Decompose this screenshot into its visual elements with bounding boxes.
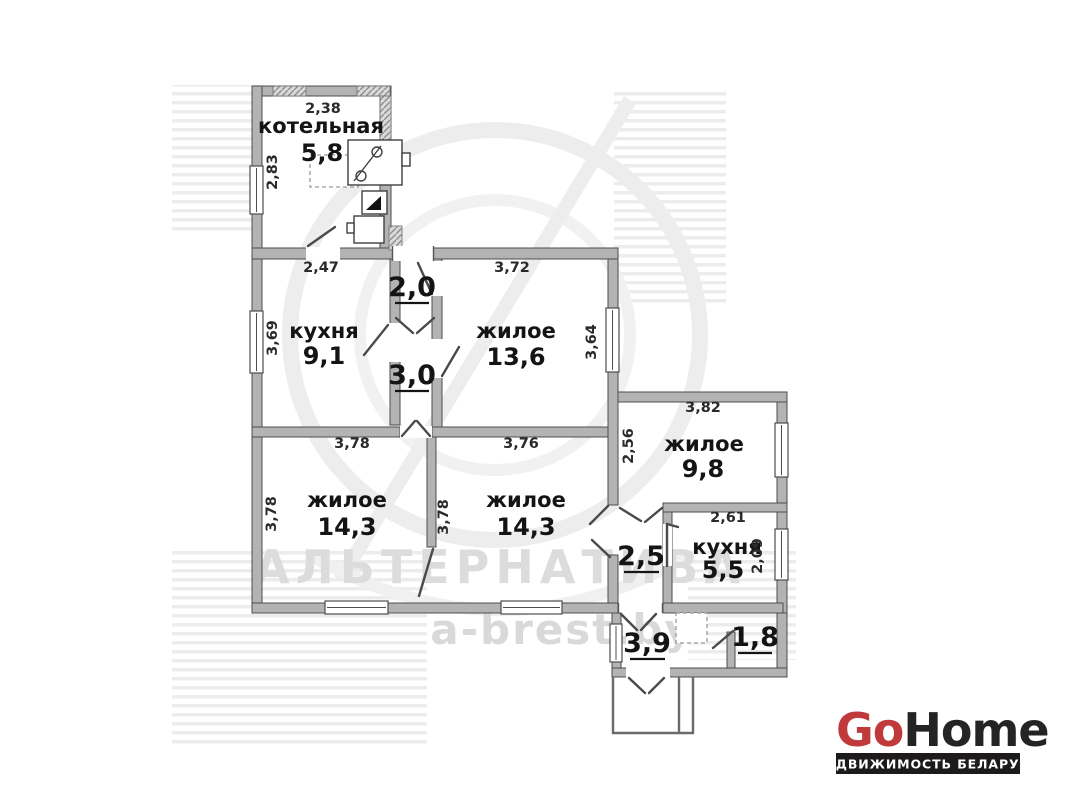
logo-tagline: НЕДВИЖИМОСТЬ БЕЛАРУСИ [815, 757, 1041, 772]
dimension-label: 2,61 [710, 510, 746, 526]
room-area-kitchen2: 5,5 [702, 556, 745, 584]
room-area-boiler: 5,8 [301, 139, 344, 167]
door-leaf [645, 508, 662, 522]
dimension-label: 3,64 [584, 324, 600, 360]
wall-segment [252, 427, 400, 437]
room-area-kitchen1: 9,1 [303, 342, 346, 370]
room-name-kitchen1: кухня [289, 319, 358, 343]
door-opening [306, 247, 340, 260]
boiler-handle [402, 153, 410, 166]
dimension-label: 3,69 [265, 320, 281, 356]
door-leaf [442, 347, 459, 376]
door-leaf [629, 678, 645, 693]
dimension-label: 3,76 [503, 436, 539, 452]
hall-label-1-8: 1,8 [731, 622, 779, 653]
logo-home: Home [903, 703, 1048, 757]
dimension-label: 2,38 [305, 101, 341, 117]
door-opening [389, 323, 401, 362]
hatched-wall [357, 86, 390, 96]
floor-plan-page: АЛЬТЕРНАТИВА a-brest.by [0, 0, 1068, 800]
door-leaf [417, 318, 434, 333]
hall-label-2-0: 2,0 [388, 272, 436, 303]
wall-segment [252, 603, 618, 613]
hall-label-3-0: 3,0 [388, 360, 436, 391]
room-area-living4: 9,8 [682, 455, 725, 483]
floor-plan-canvas: АЛЬТЕРНАТИВА a-brest.by [0, 0, 1068, 800]
dashed-fixture [676, 613, 707, 643]
room-area-living2: 14,3 [317, 513, 376, 541]
room-name-living4: жилое [664, 432, 744, 456]
watermark-stripes [172, 85, 260, 235]
dimension-label: 3,78 [436, 499, 452, 535]
stove-handle [347, 223, 354, 233]
dimension-label: 3,78 [264, 496, 280, 532]
stove [354, 216, 384, 243]
room-name-living1: жилое [476, 319, 556, 343]
dimension-label: 3,82 [685, 400, 721, 416]
wall-segment [663, 603, 783, 613]
porch [613, 677, 693, 733]
door-leaf [364, 325, 388, 355]
door-leaf [649, 678, 664, 693]
wall-segment [608, 259, 618, 505]
dimension-label: 3,78 [334, 436, 370, 452]
room-name-living2: жилое [307, 488, 387, 512]
dimension-label: 2,83 [265, 154, 281, 190]
door-leaf [620, 508, 641, 521]
logo-go: Go [836, 703, 903, 757]
dimension-label: 2,47 [303, 260, 339, 276]
room-name-living3: жилое [486, 488, 566, 512]
dimension-label: 2,09 [750, 538, 766, 574]
wall-segment [427, 437, 436, 547]
dimension-label: 2,56 [621, 428, 637, 464]
hatched-wall [273, 86, 306, 96]
hall-label-3-9: 3,9 [623, 628, 671, 659]
porch-outline [613, 677, 693, 733]
room-area-living1: 13,6 [486, 343, 545, 371]
room-name-boiler: котельная [258, 114, 384, 138]
dimension-label: 3,72 [494, 260, 530, 276]
door-opening [626, 667, 670, 678]
door-opening [392, 246, 434, 261]
hall-label-2-5: 2,5 [617, 541, 665, 572]
gohome-logo: GoHome НЕДВИЖИМОСТЬ БЕЛАРУСИ [815, 703, 1049, 774]
logo-text: GoHome [836, 703, 1049, 757]
room-area-living3: 14,3 [496, 513, 555, 541]
watermark-stripes [614, 88, 726, 303]
